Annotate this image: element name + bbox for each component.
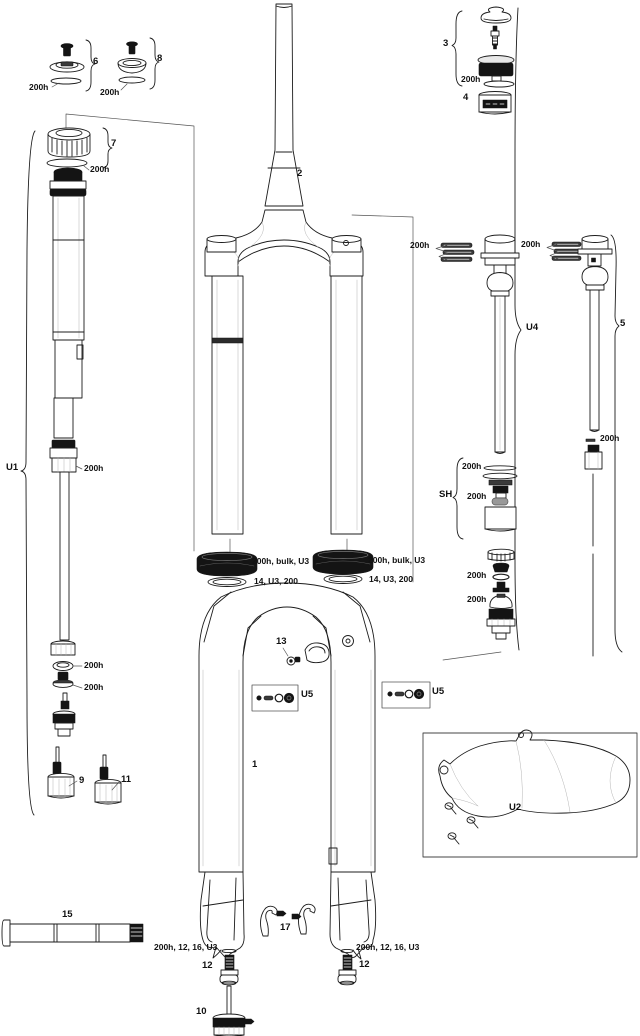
label-foam-ring-right: 14, U3, 200 xyxy=(369,574,413,584)
rebound-knob-10 xyxy=(213,986,254,1036)
label-oring-3: 200h xyxy=(461,74,480,84)
label-oring-u1-a: 200h xyxy=(84,660,103,670)
csu-assembly-2 xyxy=(205,4,363,534)
label-oring-rm1: 200h xyxy=(467,570,486,580)
label-sh: SH xyxy=(439,490,452,500)
dust-seal-left xyxy=(197,552,257,576)
rebound-damper-parts xyxy=(487,549,515,639)
label-item-2: 2 xyxy=(297,169,302,179)
hardware-box-u5-left xyxy=(252,685,298,711)
label-oring-5: 200h xyxy=(521,239,540,249)
fender-kit-u2 xyxy=(423,730,637,857)
rebound-knob-9 xyxy=(48,747,77,798)
lowers-assembly-1 xyxy=(199,583,376,959)
exploded-fork-diagram: 6 200h 8 200h 7 200h U1 200h 200h 200h 9… xyxy=(0,0,640,1036)
dust-seal-right xyxy=(313,550,373,574)
label-oring-sh2: 200h xyxy=(467,491,486,501)
rebound-knob-11 xyxy=(95,755,121,804)
damper-assembly-u1 xyxy=(21,131,86,815)
label-item-3: 3 xyxy=(443,39,448,49)
label-u4: U4 xyxy=(526,323,538,333)
label-crush-washer-right: 200h, 12, 16, U3 xyxy=(356,942,419,952)
label-u1: U1 xyxy=(6,463,18,473)
label-oring-7: 200h xyxy=(90,164,109,174)
label-item-12-left: 12 xyxy=(202,961,213,971)
diagram-linework xyxy=(0,0,640,1036)
foam-ring-left xyxy=(208,578,246,587)
label-item-15: 15 xyxy=(62,910,73,920)
label-oring-8: 200h xyxy=(100,87,119,97)
air-shaft-u4 xyxy=(436,235,519,454)
label-item-6: 6 xyxy=(93,57,98,67)
label-crush-washer-left: 200h, 12, 16, U3 xyxy=(154,942,217,952)
label-oring-sh1: 200h xyxy=(462,461,481,471)
fender-screw xyxy=(448,833,459,844)
fender-screw xyxy=(467,817,478,828)
label-u5-right: U5 xyxy=(432,687,444,697)
label-oring-u4: 200h xyxy=(410,240,429,250)
label-item-12-right: 12 xyxy=(359,960,370,970)
label-item-17: 17 xyxy=(280,923,291,933)
label-oring-sealhead: 200h xyxy=(600,433,619,443)
top-cap-4 xyxy=(479,92,511,115)
label-item-4: 4 xyxy=(463,93,468,103)
hardware-box-u5-right xyxy=(382,682,430,708)
label-item-11: 11 xyxy=(121,775,131,785)
label-oring-u1-b: 200h xyxy=(84,682,103,692)
label-u2: U2 xyxy=(509,803,521,813)
label-item-10: 10 xyxy=(196,1007,207,1017)
thru-axle-15 xyxy=(2,920,143,946)
label-item-13: 13 xyxy=(276,637,287,647)
label-item-1: 1 xyxy=(252,760,257,770)
label-item-8: 8 xyxy=(157,54,162,64)
topcap-group-8 xyxy=(118,38,159,90)
label-dust-seal-right: 200h, bulk, U3 xyxy=(368,555,425,565)
label-oring-u1-nut: 200h xyxy=(84,463,103,473)
fender-screw xyxy=(445,803,456,814)
label-item-9: 9 xyxy=(79,776,84,786)
label-u5-left: U5 xyxy=(301,690,313,700)
label-foam-ring-left: 14, U3, 200 xyxy=(254,576,298,586)
label-item-5: 5 xyxy=(620,319,625,329)
bracket-u4 xyxy=(515,8,521,650)
label-oring-rm2: 200h xyxy=(467,594,486,604)
label-dust-seal-left: 200h, bulk, U3 xyxy=(252,556,309,566)
cable-clamp-13 xyxy=(283,643,329,665)
label-item-7: 7 xyxy=(111,139,116,149)
spring-shaft-5 xyxy=(547,235,622,656)
topcap-group-6 xyxy=(50,40,95,91)
label-oring-6: 200h xyxy=(29,82,48,92)
foam-ring-right xyxy=(324,575,362,584)
